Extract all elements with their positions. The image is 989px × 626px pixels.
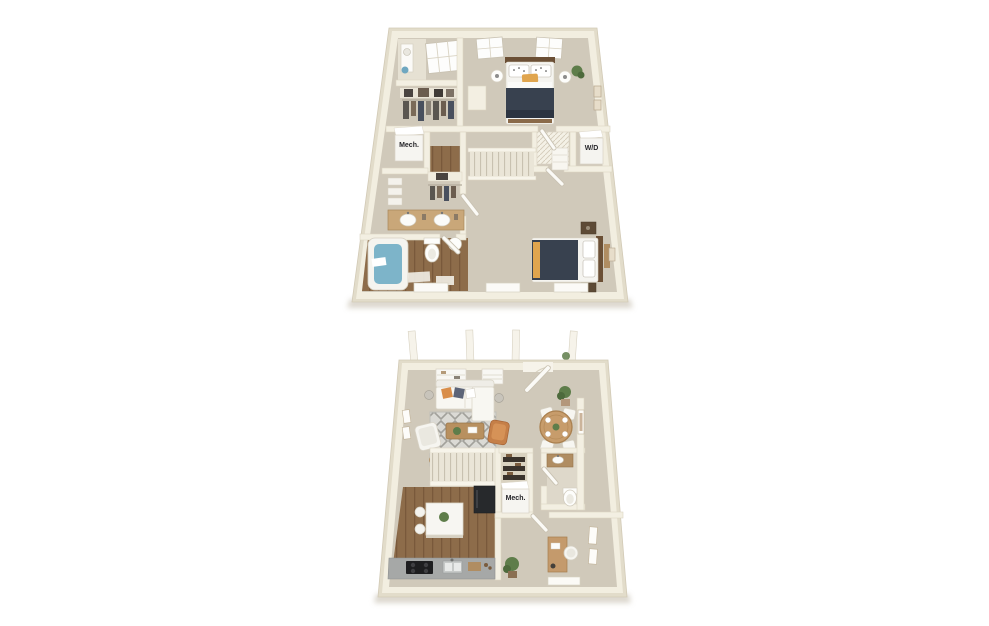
cooktop (406, 561, 433, 574)
drawer-cabinet (552, 148, 568, 170)
porch-posts (408, 330, 577, 364)
hamper (402, 67, 409, 74)
throw-pillow (466, 388, 476, 398)
planter-pot (508, 571, 517, 578)
lower-floor-plan (374, 330, 631, 603)
upper-floor-plan (347, 28, 633, 308)
sink (404, 49, 411, 56)
bar-stool (415, 524, 425, 534)
sofa-chaise (472, 387, 494, 421)
mechanical-unit-upper (394, 126, 424, 161)
linen-shelves (388, 178, 402, 205)
wall-art (594, 100, 601, 110)
floor-plans-canvas (0, 0, 989, 626)
wall-art (588, 527, 597, 545)
porch-plant (562, 352, 570, 360)
sink (434, 214, 450, 226)
planter-pot (561, 399, 570, 406)
desk-lamp (551, 564, 556, 569)
bed-foot-rail (508, 119, 552, 123)
island-plant (439, 512, 449, 522)
upper-bottom-windows (414, 283, 588, 292)
lower-stairs (430, 453, 495, 481)
bed-throw (533, 242, 540, 278)
porch-post (408, 331, 418, 364)
throw-pillow (441, 387, 453, 399)
coffee-table (446, 423, 484, 439)
hall-wood-floor (430, 146, 460, 172)
double-vanity (388, 210, 464, 230)
floor-plan-image: Mech. W/D Mech. (0, 0, 989, 626)
porch-post (466, 330, 474, 364)
sink (553, 457, 564, 464)
plant (453, 427, 461, 435)
porch-post (512, 330, 520, 364)
centerpiece-plant (553, 424, 560, 431)
upper-stairs (470, 152, 534, 176)
floor-lamp (495, 394, 504, 403)
wall-art (594, 86, 601, 97)
washer-dryer-unit (580, 138, 603, 164)
porch-post (568, 331, 577, 364)
bathroom-1 (401, 40, 460, 73)
stair-bump (468, 86, 486, 110)
throw-pillow (453, 387, 465, 399)
window-sill (548, 577, 580, 585)
bath-mat (408, 271, 430, 282)
bar-stool (415, 507, 425, 517)
book (468, 427, 477, 433)
pillow (583, 241, 595, 258)
paper (551, 543, 560, 549)
cutting-board (468, 562, 481, 571)
toilet-tank (424, 238, 440, 244)
wall-art (609, 248, 615, 261)
floor-lamp (425, 391, 434, 400)
mechanical-unit-lower (501, 481, 529, 513)
sink (400, 214, 416, 226)
wall-art (588, 549, 597, 565)
wall-art (402, 410, 411, 424)
bed-duvet-fold (506, 110, 554, 118)
pillow (583, 260, 595, 277)
wall-art (402, 427, 411, 440)
